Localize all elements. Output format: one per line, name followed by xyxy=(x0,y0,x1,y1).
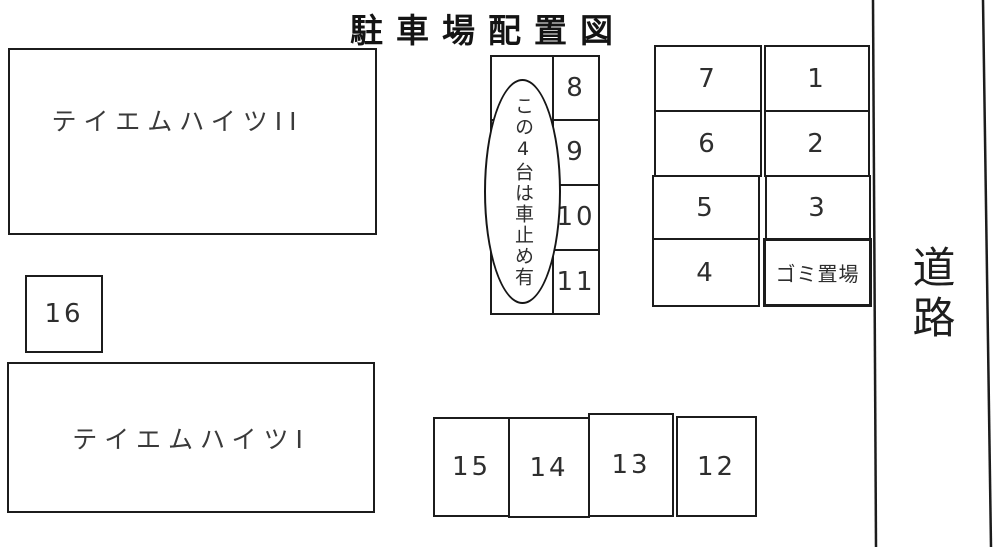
road-left-boundary-line xyxy=(873,0,876,547)
parking-layout-diagram: 駐車場配置図 テイエムハイツII テイエムハイツI 16 8 9 10 11 こ… xyxy=(0,0,1000,547)
road-boundary-lines xyxy=(0,0,1000,547)
road-right-boundary-line xyxy=(983,0,991,547)
road-label: 道路 xyxy=(900,245,954,345)
